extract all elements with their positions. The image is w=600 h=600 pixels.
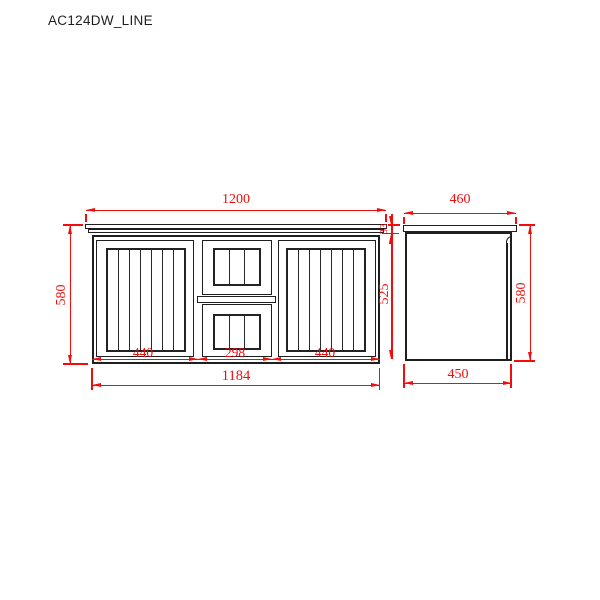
extension-line [403, 217, 404, 224]
arrowhead [528, 352, 532, 361]
side-view: 460 580 450 [0, 0, 600, 600]
drawing-sheet: AC124DW_LINE 1200 [0, 0, 600, 600]
arrowhead [503, 381, 512, 385]
extension-line [514, 360, 535, 361]
arrowhead [404, 211, 413, 215]
benchtop-side [403, 225, 517, 232]
cabinet-body-side [405, 232, 512, 361]
dimension-line [404, 383, 512, 384]
arrowhead [507, 211, 516, 215]
arrowhead [528, 225, 532, 234]
arrowhead [404, 381, 413, 385]
dimension-line [404, 213, 516, 214]
door-edge-line [506, 243, 508, 359]
extension-line [515, 217, 516, 224]
dim-label-cabinet-depth: 450 [428, 367, 488, 382]
dim-label-overall-depth: 460 [430, 192, 490, 207]
dim-label-side-height: 580 [510, 275, 534, 311]
